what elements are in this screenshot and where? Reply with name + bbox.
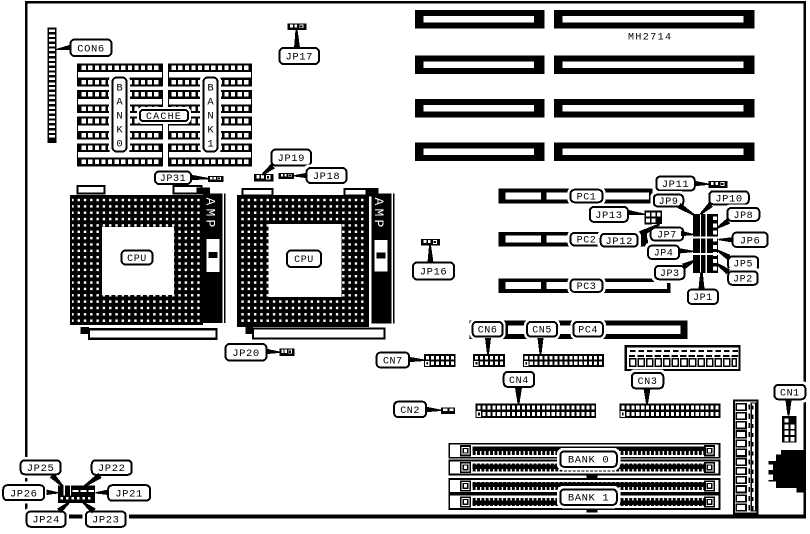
svg-text:JP11: JP11	[662, 179, 690, 191]
svg-text:0: 0	[116, 138, 122, 150]
svg-text:JP12: JP12	[605, 236, 633, 248]
svg-text:JP3: JP3	[660, 269, 680, 280]
svg-text:K: K	[116, 124, 123, 136]
svg-text:K: K	[207, 124, 214, 136]
svg-text:JP17: JP17	[285, 52, 313, 64]
svg-text:JP31: JP31	[160, 174, 186, 185]
svg-text:JP21: JP21	[115, 489, 143, 501]
svg-text:JP19: JP19	[277, 153, 305, 165]
svg-text:JP6: JP6	[740, 235, 761, 247]
svg-text:CN1: CN1	[780, 388, 800, 399]
svg-text:JP16: JP16	[420, 267, 448, 279]
svg-text:1: 1	[207, 138, 213, 150]
svg-text:JP2: JP2	[733, 274, 753, 285]
svg-text:AMP: AMP	[203, 198, 218, 231]
svg-text:CACHE: CACHE	[146, 112, 182, 123]
svg-text:JP20: JP20	[232, 348, 260, 360]
svg-text:CN6: CN6	[478, 326, 498, 337]
svg-text:CN2: CN2	[400, 406, 420, 417]
svg-text:PC1: PC1	[577, 192, 597, 203]
svg-text:A: A	[207, 96, 214, 108]
svg-text:N: N	[116, 110, 122, 122]
svg-text:CPU: CPU	[294, 255, 314, 266]
svg-text:AMP: AMP	[371, 198, 386, 231]
svg-text:BANK 0: BANK 0	[568, 455, 609, 467]
svg-text:N: N	[207, 110, 213, 122]
svg-text:PC3: PC3	[577, 282, 597, 293]
svg-text:CN3: CN3	[638, 377, 658, 388]
svg-text:A: A	[116, 96, 123, 108]
svg-text:CN5: CN5	[532, 326, 552, 337]
svg-text:CPU: CPU	[127, 254, 147, 265]
svg-text:JP25: JP25	[27, 463, 55, 475]
svg-text:BANK 1: BANK 1	[568, 493, 609, 505]
svg-text:JP8: JP8	[733, 211, 753, 222]
svg-text:MH2714: MH2714	[628, 33, 672, 44]
svg-text:JP4: JP4	[654, 249, 674, 260]
svg-text:JP24: JP24	[32, 515, 60, 527]
svg-text:B: B	[116, 82, 122, 94]
svg-text:JP10: JP10	[715, 193, 743, 205]
svg-text:JP22: JP22	[98, 463, 126, 475]
svg-text:CON6: CON6	[77, 43, 105, 55]
svg-text:JP1: JP1	[693, 293, 713, 304]
svg-text:JP18: JP18	[313, 171, 341, 183]
svg-text:JP13: JP13	[595, 210, 623, 222]
svg-text:CN7: CN7	[383, 356, 403, 367]
svg-text:PC4: PC4	[578, 326, 598, 337]
svg-text:B: B	[207, 82, 213, 94]
svg-text:JP9: JP9	[659, 197, 679, 208]
svg-text:JP7: JP7	[657, 230, 677, 241]
svg-text:CN4: CN4	[509, 376, 529, 387]
svg-text:PC2: PC2	[577, 236, 597, 247]
svg-text:JP23: JP23	[92, 515, 120, 527]
svg-text:JP26: JP26	[10, 488, 38, 500]
